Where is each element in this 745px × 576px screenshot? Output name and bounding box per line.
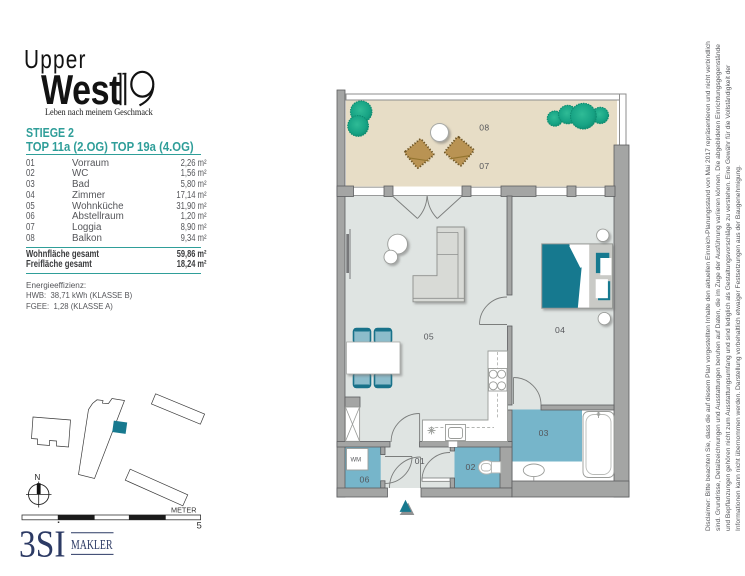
svg-text:METER: METER xyxy=(171,505,197,514)
svg-text:04: 04 xyxy=(555,325,565,335)
svg-text:02: 02 xyxy=(466,462,476,472)
svg-text:03: 03 xyxy=(539,428,549,438)
svg-text:07: 07 xyxy=(479,161,489,171)
svg-text:3SI: 3SI xyxy=(19,523,66,565)
svg-text:01: 01 xyxy=(415,456,425,466)
svg-text:08: 08 xyxy=(479,122,489,132)
svg-text:05: 05 xyxy=(424,332,434,342)
svg-text:06: 06 xyxy=(360,475,370,485)
svg-text:WM: WM xyxy=(351,458,362,464)
svg-text:N: N xyxy=(35,473,41,482)
svg-text:5: 5 xyxy=(197,521,202,532)
svg-text:MAKLER: MAKLER xyxy=(71,537,113,552)
